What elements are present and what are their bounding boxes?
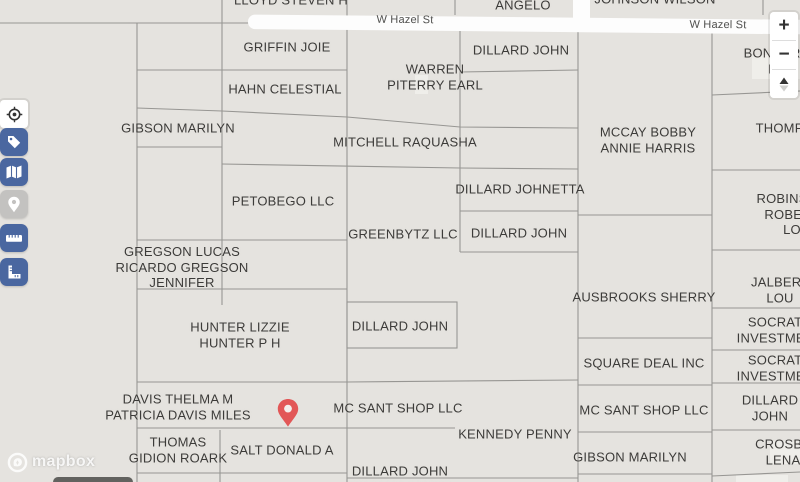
road-w-hazel-st bbox=[248, 0, 800, 34]
location-pin-icon bbox=[7, 196, 21, 213]
pitch-triangles-icon bbox=[777, 76, 791, 93]
mapbox-wordmark: mapbox bbox=[32, 453, 95, 471]
zoom-out-button[interactable]: − bbox=[770, 41, 798, 69]
zoom-in-button[interactable]: + bbox=[770, 12, 798, 40]
folded-map-icon bbox=[5, 164, 23, 180]
minus-icon: − bbox=[778, 44, 789, 66]
geolocate-icon bbox=[6, 106, 23, 123]
mapbox-icon bbox=[7, 452, 28, 473]
map-marker-pin[interactable] bbox=[276, 398, 300, 428]
tags-button[interactable] bbox=[0, 128, 28, 156]
attribution-pill[interactable] bbox=[53, 477, 133, 482]
tag-icon bbox=[6, 134, 22, 150]
measure-distance-button[interactable] bbox=[0, 224, 28, 252]
pitch-toggle-button[interactable] bbox=[770, 70, 798, 98]
add-pin-button[interactable] bbox=[0, 190, 28, 218]
map-canvas[interactable]: W Hazel St W Hazel St LLOYD STEVEN HANGE… bbox=[0, 0, 800, 482]
measure-area-button[interactable] bbox=[0, 258, 28, 286]
geolocate-button[interactable] bbox=[0, 100, 28, 128]
plus-icon: + bbox=[778, 15, 789, 37]
mapbox-logo[interactable]: mapbox bbox=[7, 450, 95, 474]
ruler-icon bbox=[5, 232, 23, 245]
set-square-icon bbox=[6, 264, 22, 280]
parcel-lines-svg bbox=[0, 0, 800, 482]
map-pin-icon bbox=[276, 398, 300, 428]
layers-button[interactable] bbox=[0, 158, 28, 186]
map-navigation-controls: + − bbox=[770, 12, 798, 98]
